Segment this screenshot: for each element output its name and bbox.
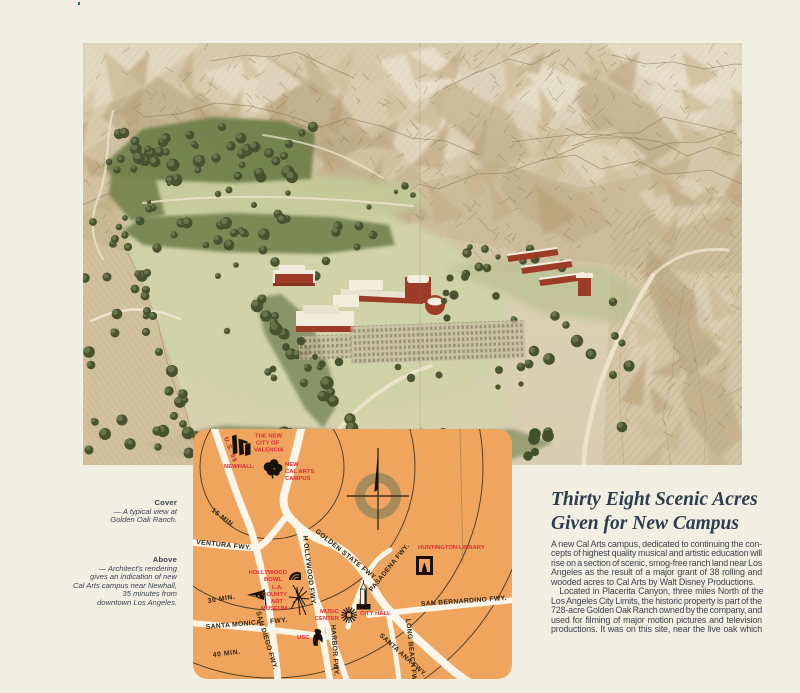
svg-text:NEWHALL: NEWHALL — [224, 464, 254, 470]
svg-text:USC: USC — [297, 635, 310, 641]
svg-text:CITY HALL: CITY HALL — [360, 611, 391, 617]
svg-text:UCLA: UCLA — [250, 595, 260, 599]
svg-text:HUNTINGTON LIBRARY: HUNTINGTON LIBRARY — [418, 545, 485, 551]
